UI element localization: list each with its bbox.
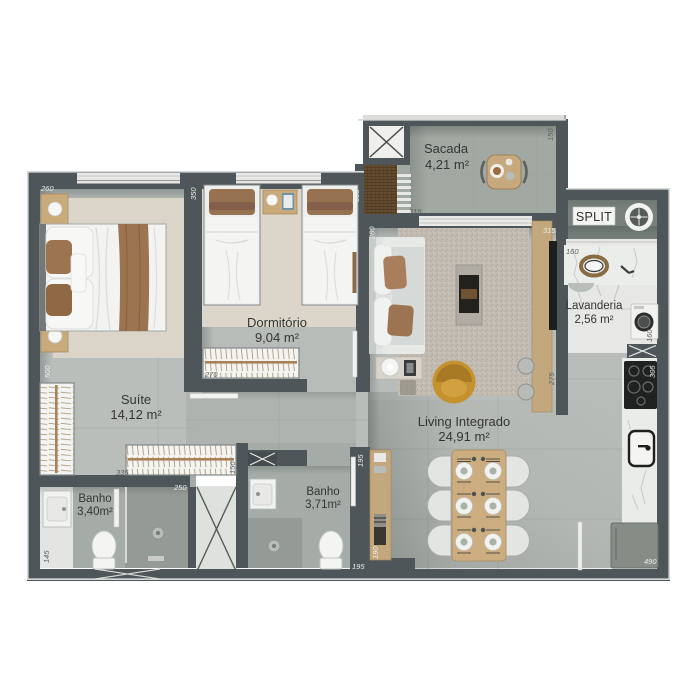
svg-text:195: 195 (356, 454, 365, 467)
svg-text:250: 250 (173, 483, 187, 492)
svg-text:500: 500 (43, 365, 52, 378)
svg-text:Dormitório: Dormitório (247, 315, 307, 330)
svg-text:490: 490 (644, 557, 657, 566)
svg-text:280: 280 (368, 226, 377, 240)
svg-text:3,40m²: 3,40m² (77, 506, 113, 518)
svg-text:24,91 m²: 24,91 m² (438, 429, 490, 444)
svg-text:3,71m²: 3,71m² (305, 499, 341, 511)
svg-text:2,56 m²: 2,56 m² (575, 314, 614, 326)
svg-text:305: 305 (648, 365, 657, 378)
svg-text:150: 150 (546, 128, 555, 141)
svg-text:275: 275 (547, 372, 556, 386)
svg-text:14,12 m²: 14,12 m² (110, 407, 162, 422)
svg-text:335: 335 (352, 189, 361, 202)
svg-text:260: 260 (40, 184, 54, 193)
svg-text:9,04 m²: 9,04 m² (255, 330, 300, 345)
svg-text:Sacada: Sacada (424, 141, 469, 156)
svg-text:190: 190 (371, 546, 380, 559)
svg-text:Lavanderia: Lavanderia (566, 300, 624, 312)
svg-text:SPLIT: SPLIT (576, 210, 612, 224)
svg-text:145: 145 (42, 550, 51, 563)
svg-text:Banho: Banho (306, 486, 339, 498)
svg-text:Banho: Banho (78, 493, 111, 505)
svg-text:350: 350 (189, 187, 198, 200)
svg-text:335: 335 (116, 468, 129, 477)
svg-text:160: 160 (645, 329, 654, 342)
svg-text:195: 195 (352, 562, 365, 571)
svg-text:270: 270 (204, 370, 218, 379)
svg-text:315: 315 (543, 226, 556, 235)
svg-text:160: 160 (566, 247, 579, 256)
svg-text:Suíte: Suíte (121, 392, 151, 407)
svg-text:150: 150 (228, 461, 237, 474)
svg-text:315: 315 (409, 207, 422, 216)
svg-text:Living Integrado: Living Integrado (418, 414, 511, 429)
svg-text:4,21 m²: 4,21 m² (425, 157, 470, 172)
